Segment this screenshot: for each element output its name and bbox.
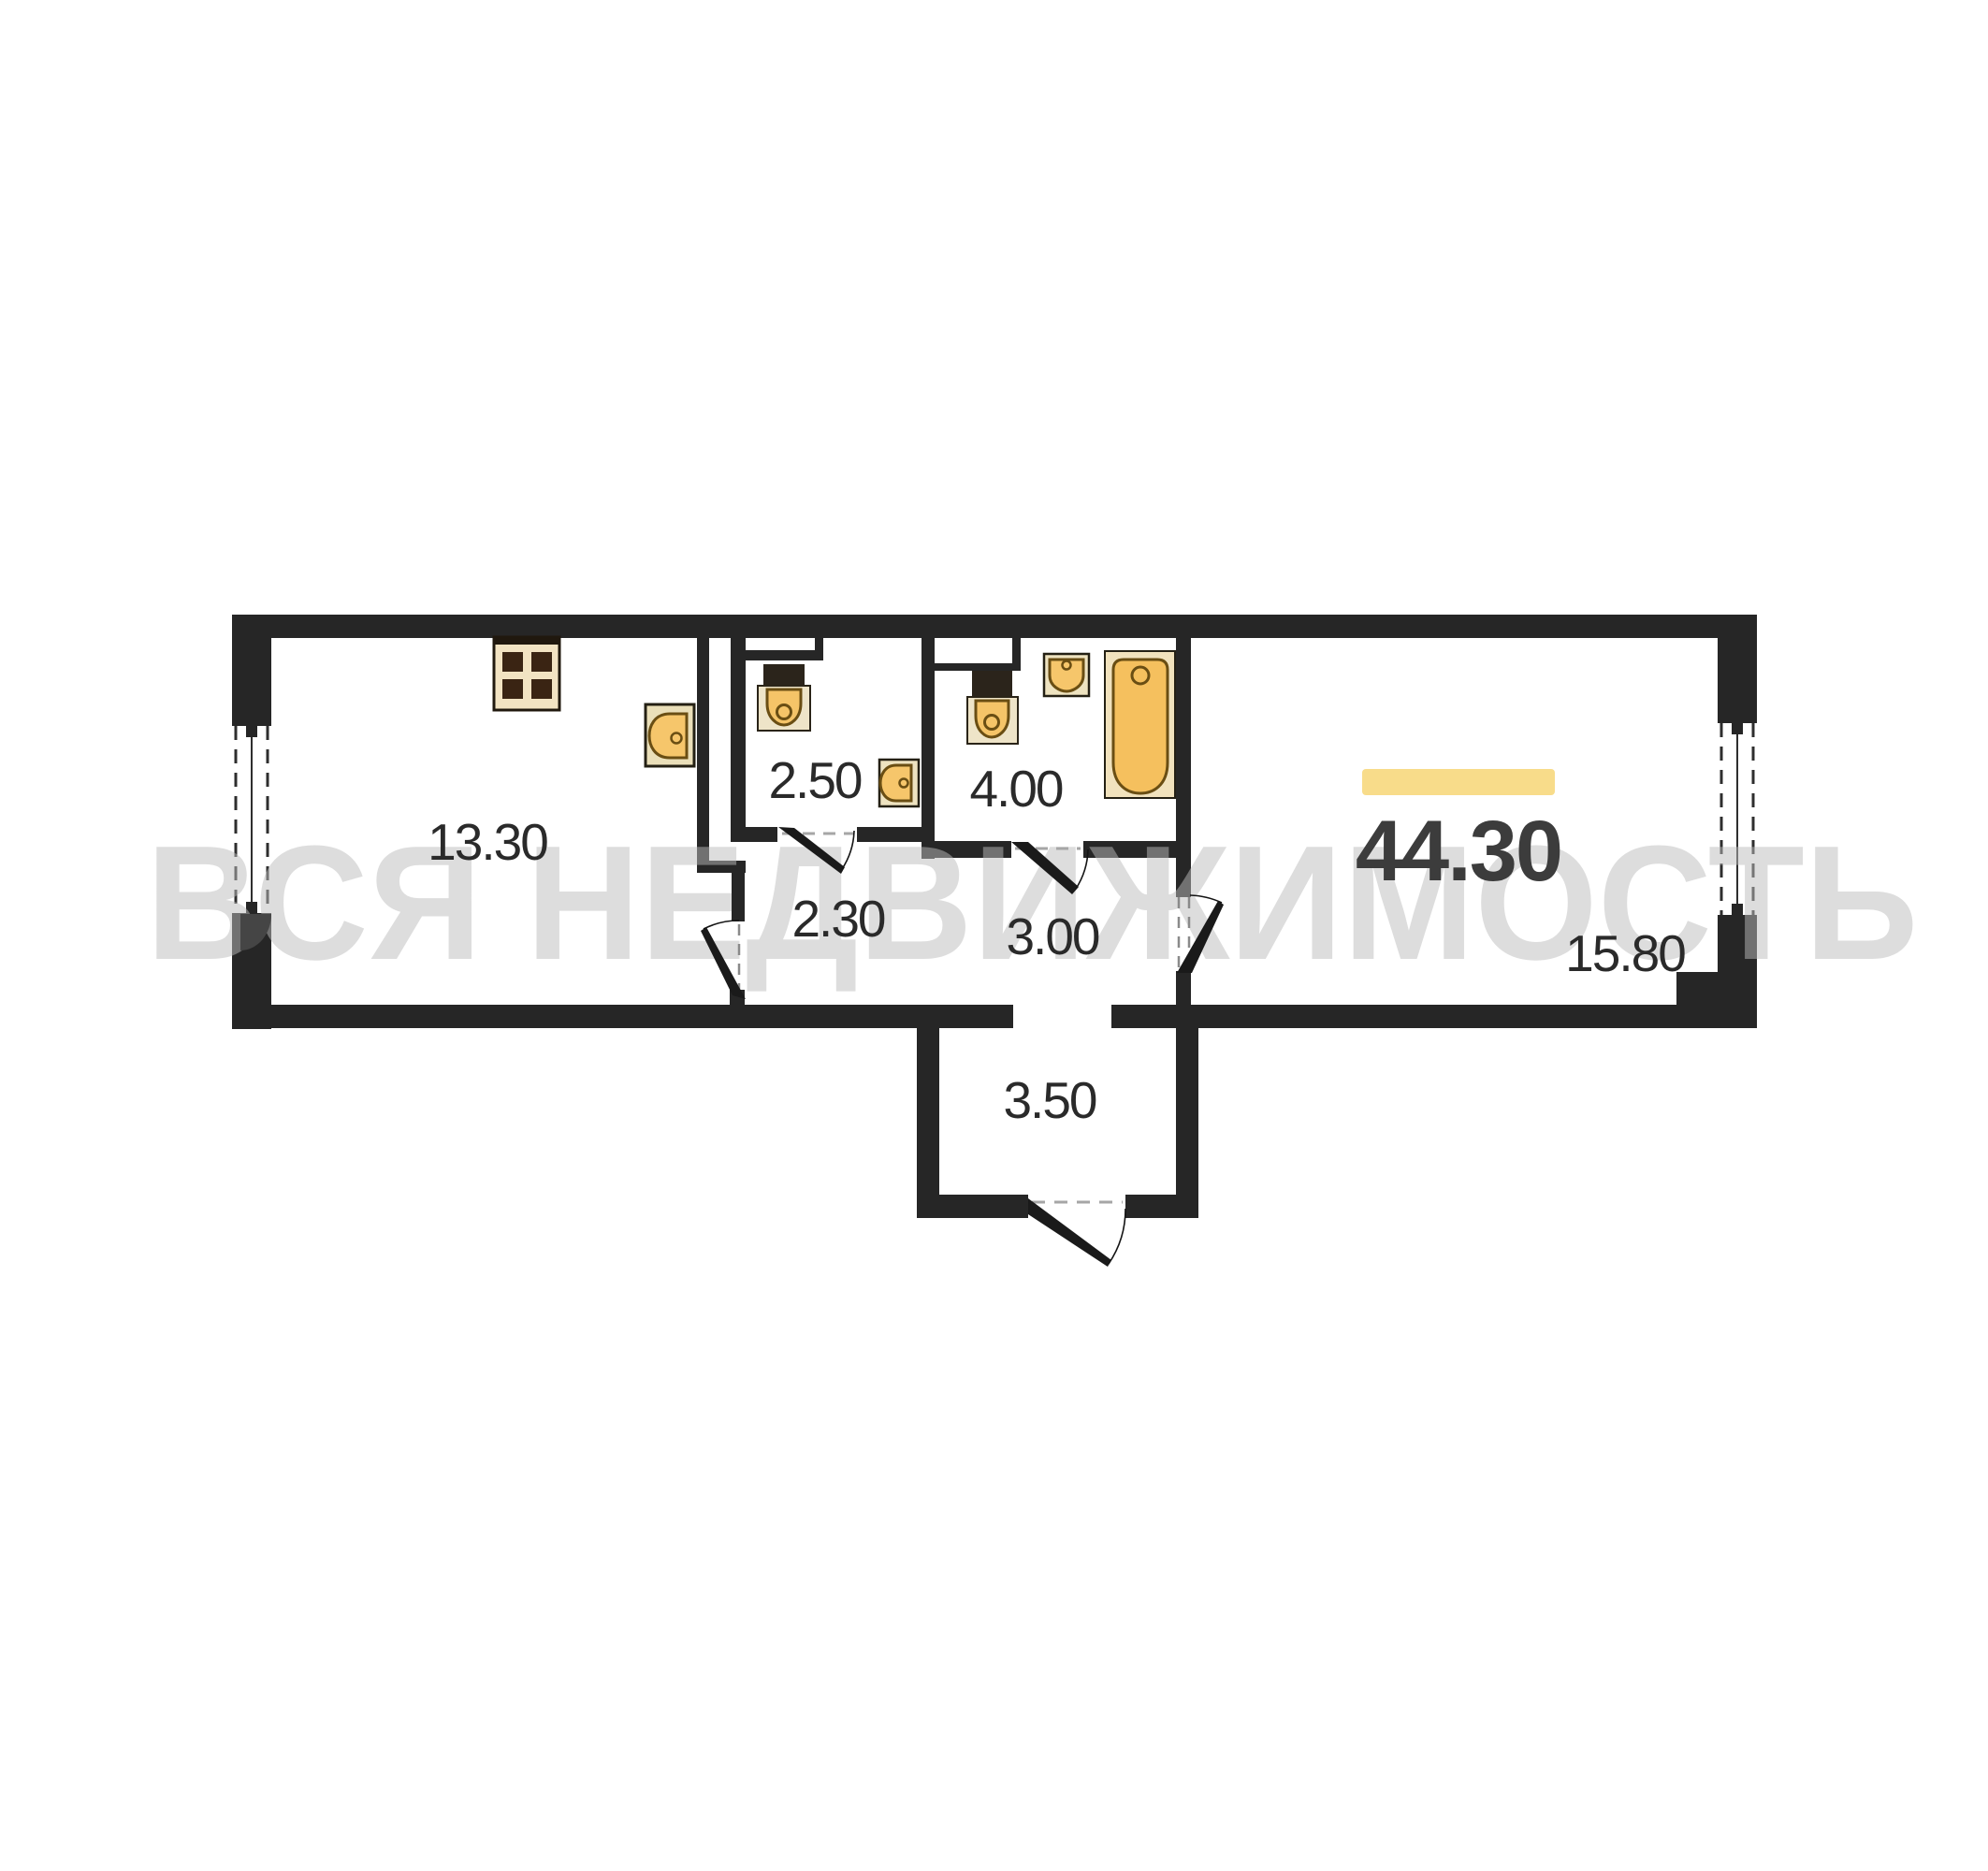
svg-text:2.30: 2.30: [791, 890, 884, 948]
svg-text:15.80: 15.80: [1565, 924, 1685, 982]
svg-text:3.50: 3.50: [1003, 1071, 1096, 1129]
svg-text:3.00: 3.00: [1006, 907, 1098, 965]
svg-text:2.50: 2.50: [768, 751, 861, 809]
svg-text:13.30: 13.30: [428, 813, 547, 871]
svg-text:44.30: 44.30: [1356, 804, 1561, 899]
svg-text:4.00: 4.00: [969, 760, 1062, 818]
